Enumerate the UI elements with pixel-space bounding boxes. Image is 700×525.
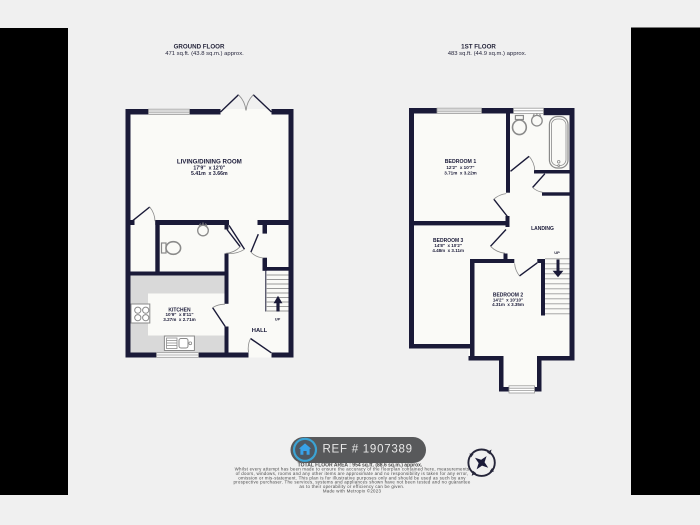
svg-text:14'8" x 10'2": 14'8" x 10'2": [434, 243, 462, 248]
svg-text:UP: UP: [275, 317, 281, 322]
svg-text:UP: UP: [554, 250, 560, 255]
svg-text:471 sq.ft. (43.8 sq.m.) approx: 471 sq.ft. (43.8 sq.m.) approx.: [165, 51, 244, 57]
svg-text:4.31m x 3.35m: 4.31m x 3.35m: [492, 302, 524, 307]
svg-text:1ST FLOOR: 1ST FLOOR: [461, 44, 496, 51]
svg-text:GROUND FLOOR: GROUND FLOOR: [174, 44, 225, 51]
svg-text:3.71m x 3.22m: 3.71m x 3.22m: [444, 171, 476, 176]
svg-text:12'2" x 10'7": 12'2" x 10'7": [446, 165, 474, 170]
svg-text:BEDROOM 1: BEDROOM 1: [445, 159, 477, 165]
svg-text:4.48m x 3.11m: 4.48m x 3.11m: [432, 248, 464, 253]
svg-text:5.41m x 3.66m: 5.41m x 3.66m: [191, 171, 228, 177]
svg-text:HALL: HALL: [252, 328, 268, 334]
svg-text:3.27m x 2.71m: 3.27m x 2.71m: [163, 317, 195, 322]
svg-text:REF # 1907389: REF # 1907389: [323, 444, 413, 456]
svg-text:LANDING: LANDING: [531, 226, 554, 232]
svg-text:483 sq.ft. (44.9 sq.m.) approx: 483 sq.ft. (44.9 sq.m.) approx.: [448, 51, 527, 57]
svg-text:Made with Metropix ©2023: Made with Metropix ©2023: [323, 488, 382, 493]
